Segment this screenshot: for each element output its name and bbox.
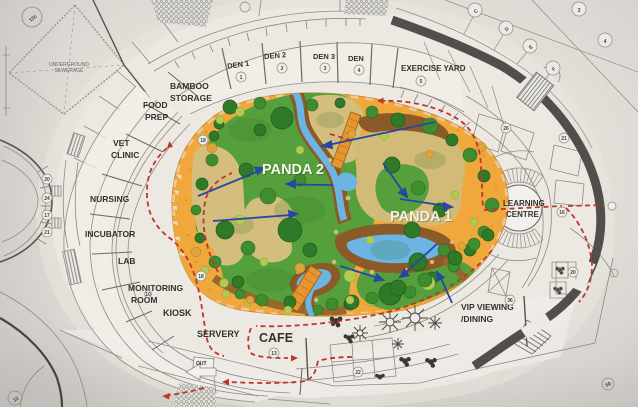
svg-text:EXERCISE YARD: EXERCISE YARD bbox=[401, 64, 466, 73]
svg-text:24: 24 bbox=[44, 196, 50, 202]
svg-text:SEWERAGE: SEWERAGE bbox=[55, 68, 85, 74]
svg-text:DEN: DEN bbox=[348, 54, 364, 63]
svg-text:PANDA 2: PANDA 2 bbox=[262, 162, 324, 178]
svg-text:18: 18 bbox=[198, 274, 204, 280]
svg-text:SERVERY: SERVERY bbox=[197, 329, 240, 339]
svg-text:PREP: PREP bbox=[145, 112, 168, 122]
svg-text:10: 10 bbox=[145, 292, 151, 298]
svg-text:DEN 3: DEN 3 bbox=[313, 52, 335, 61]
svg-text:26: 26 bbox=[503, 126, 509, 132]
svg-text:PANDA 1: PANDA 1 bbox=[390, 209, 452, 225]
svg-text:1: 1 bbox=[240, 75, 243, 81]
svg-text:18: 18 bbox=[200, 138, 206, 144]
svg-text:INCUBATOR: INCUBATOR bbox=[85, 229, 135, 239]
svg-text:KIOSK: KIOSK bbox=[163, 308, 192, 318]
svg-text:NURSING: NURSING bbox=[90, 194, 130, 204]
svg-text:BAMBOO: BAMBOO bbox=[170, 81, 209, 91]
svg-text:22: 22 bbox=[355, 370, 361, 376]
svg-text:36: 36 bbox=[507, 298, 513, 304]
svg-text:4: 4 bbox=[604, 39, 607, 45]
svg-text:LEARNING: LEARNING bbox=[503, 199, 545, 208]
svg-text:LAB: LAB bbox=[118, 256, 135, 266]
svg-text:VET: VET bbox=[113, 138, 130, 148]
svg-text:ROOM: ROOM bbox=[131, 295, 157, 305]
svg-text:2: 2 bbox=[281, 66, 284, 72]
svg-text:DEN 2: DEN 2 bbox=[264, 50, 287, 61]
svg-text:3: 3 bbox=[578, 8, 581, 14]
svg-text:21: 21 bbox=[44, 230, 50, 236]
svg-text:20: 20 bbox=[44, 177, 50, 183]
svg-text:CENTRE: CENTRE bbox=[506, 210, 540, 219]
svg-text:/DINING: /DINING bbox=[461, 314, 494, 324]
svg-text:CAFE: CAFE bbox=[259, 331, 293, 345]
svg-text:CLINIC: CLINIC bbox=[111, 150, 139, 160]
svg-text:21: 21 bbox=[561, 136, 567, 142]
svg-text:MONITORING: MONITORING bbox=[128, 283, 183, 293]
svg-text:3: 3 bbox=[324, 66, 327, 72]
svg-text:5: 5 bbox=[420, 79, 423, 85]
svg-text:STORAGE: STORAGE bbox=[170, 93, 212, 103]
svg-text:FOOD: FOOD bbox=[143, 100, 168, 110]
svg-text:20: 20 bbox=[570, 270, 576, 276]
svg-text:17: 17 bbox=[44, 213, 50, 219]
svg-text:13: 13 bbox=[271, 351, 277, 357]
svg-text:4: 4 bbox=[358, 68, 361, 74]
svg-text:16: 16 bbox=[559, 210, 565, 216]
svg-text:OUT: OUT bbox=[196, 361, 207, 367]
